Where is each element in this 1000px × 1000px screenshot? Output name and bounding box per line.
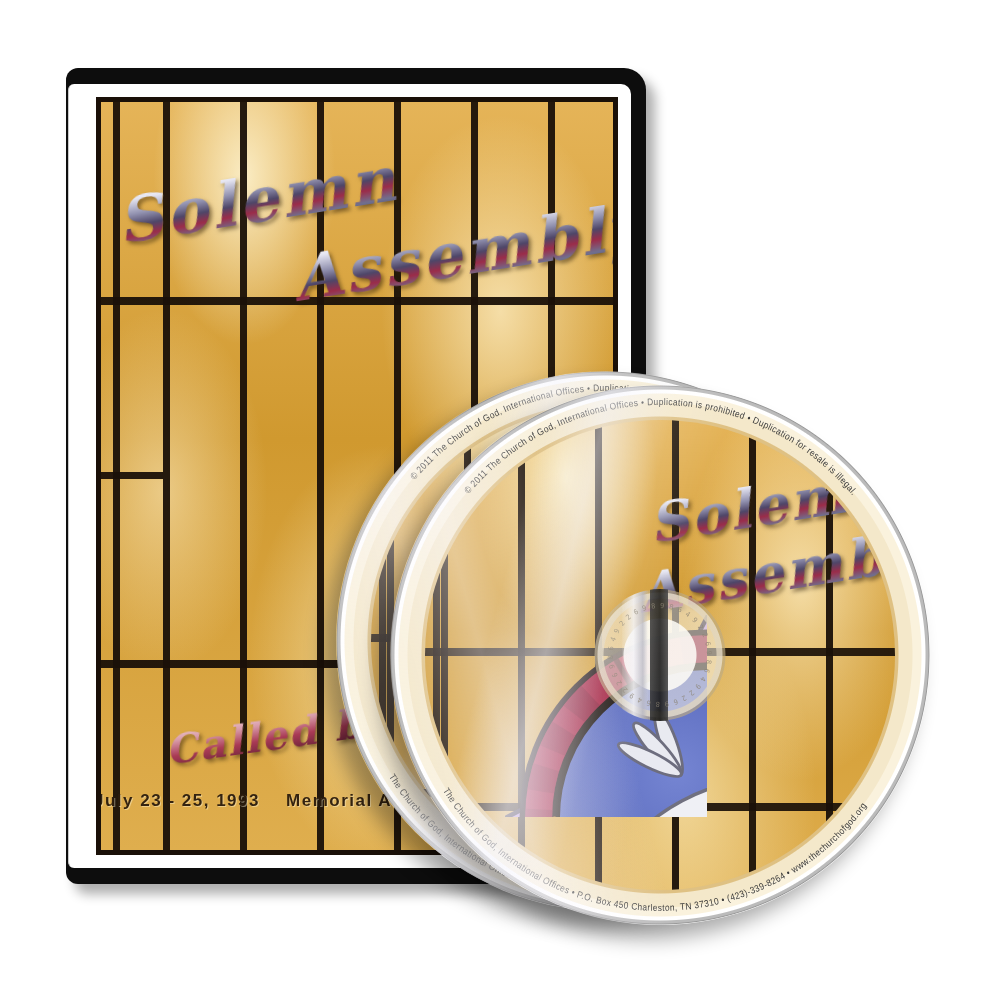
disc-bottom-arc-text: The Church of God, International Offices… xyxy=(441,786,869,913)
disc-hub: 9864922698649226986492269864922698 xyxy=(594,589,726,721)
product-photo: Solemn Assembly Called by t July 23 - 25… xyxy=(0,0,1000,1000)
disc-front: Solemn Assembly © 2011 The Church of God… xyxy=(390,385,930,925)
stained-glass-lead xyxy=(101,472,163,479)
svg-text:The Church of God, Internation: The Church of God, International Offices… xyxy=(441,786,869,913)
svg-text:986492269864922698649226986492: 9864922698649226986492269864922698 xyxy=(607,602,713,708)
hub-etching: 9864922698649226986492269864922698 xyxy=(607,602,713,708)
case-footer-date: July 23 - 25, 1993 xyxy=(96,791,260,811)
